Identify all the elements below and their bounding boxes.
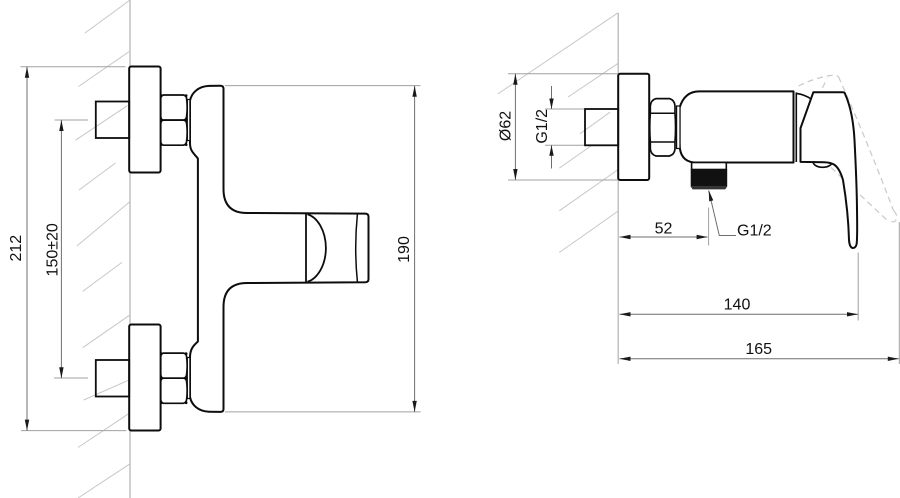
svg-text:150±20: 150±20 <box>45 223 62 276</box>
svg-text:190: 190 <box>396 236 413 263</box>
svg-text:52: 52 <box>655 221 673 238</box>
svg-text:Ø62: Ø62 <box>498 111 515 141</box>
svg-text:212: 212 <box>8 235 25 262</box>
svg-text:G1/2: G1/2 <box>534 109 551 144</box>
svg-text:140: 140 <box>724 297 751 314</box>
svg-text:165: 165 <box>745 341 772 358</box>
svg-text:G1/2: G1/2 <box>737 222 772 239</box>
